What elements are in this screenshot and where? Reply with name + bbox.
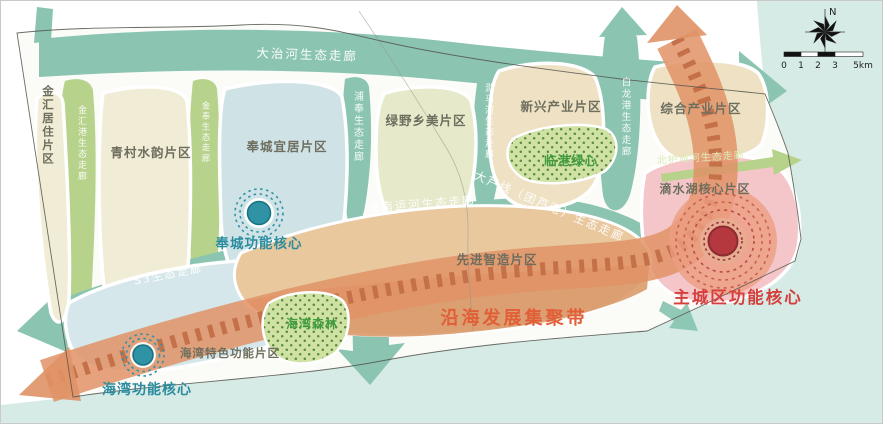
label-core-haiwan: 海湾功能核心 [102, 381, 192, 398]
planning-map-figure: 大治河生态走廊 金汇居住片区 金汇港生态走廊 青村水韵片区 金奉生态走廊 奉城宜… [0, 0, 883, 424]
label-zone-dishuihu: 滴水湖核心片区 [659, 181, 750, 196]
label-haiwan-forest: 海湾森林 [286, 316, 338, 331]
label-zone-advanced-manufacturing: 先进智造片区 [456, 252, 537, 267]
label-corridor-pufeng: 浦奉生态走廊 [352, 90, 364, 163]
compass-north-label: N [829, 7, 836, 18]
label-corridor-lemahe: 泐马河生态走廊 [483, 82, 494, 160]
label-zone-qingcun: 青村水韵片区 [110, 145, 191, 160]
scale-tick-5km: 5km [853, 61, 873, 71]
core-dot [248, 202, 271, 225]
scale-tick-1: 1 [798, 61, 804, 71]
label-corridor-jinfeng: 金奉生态走廊 [200, 100, 210, 164]
scale-segment [818, 52, 835, 57]
scale-segment [835, 52, 863, 57]
core-main-city-marker [669, 187, 777, 295]
core-dot [709, 227, 738, 256]
scale-tick-0: 0 [781, 61, 787, 71]
label-coastal-belt: 沿海发展集聚带 [441, 307, 588, 329]
label-zone-lvye: 绿野乡美片区 [385, 113, 466, 128]
scale-segment [801, 52, 818, 57]
corridor-dazhihe-stub [34, 7, 53, 43]
compass-blades-icon [809, 16, 841, 48]
label-corridor-bailonggang: 白龙港生态走廊 [620, 76, 632, 157]
label-zone-zonghe: 综合产业片区 [660, 101, 741, 116]
scale-tick-2: 2 [815, 61, 821, 71]
label-zone-jinhui: 金汇居住片区 [41, 84, 55, 166]
label-core-fengcheng: 奉城功能核心 [216, 235, 303, 252]
scale-tick-3: 3 [832, 61, 838, 71]
scale-segment [784, 52, 801, 57]
label-zone-haiwan-special: 海湾特色功能片区 [180, 346, 280, 360]
core-dot [133, 345, 153, 365]
label-zone-xinxing: 新兴产业片区 [520, 99, 601, 114]
label-lingang-green-heart: 临港绿心 [544, 153, 598, 168]
label-core-main-city: 主城区功能核心 [673, 287, 803, 307]
label-zone-fengcheng: 奉城宜居片区 [245, 139, 327, 154]
planning-map: 大治河生态走廊 金汇居住片区 金汇港生态走廊 青村水韵片区 金奉生态走廊 奉城宜… [1, 1, 883, 424]
label-corridor-jinhuigang: 金汇港生态走廊 [76, 104, 87, 182]
